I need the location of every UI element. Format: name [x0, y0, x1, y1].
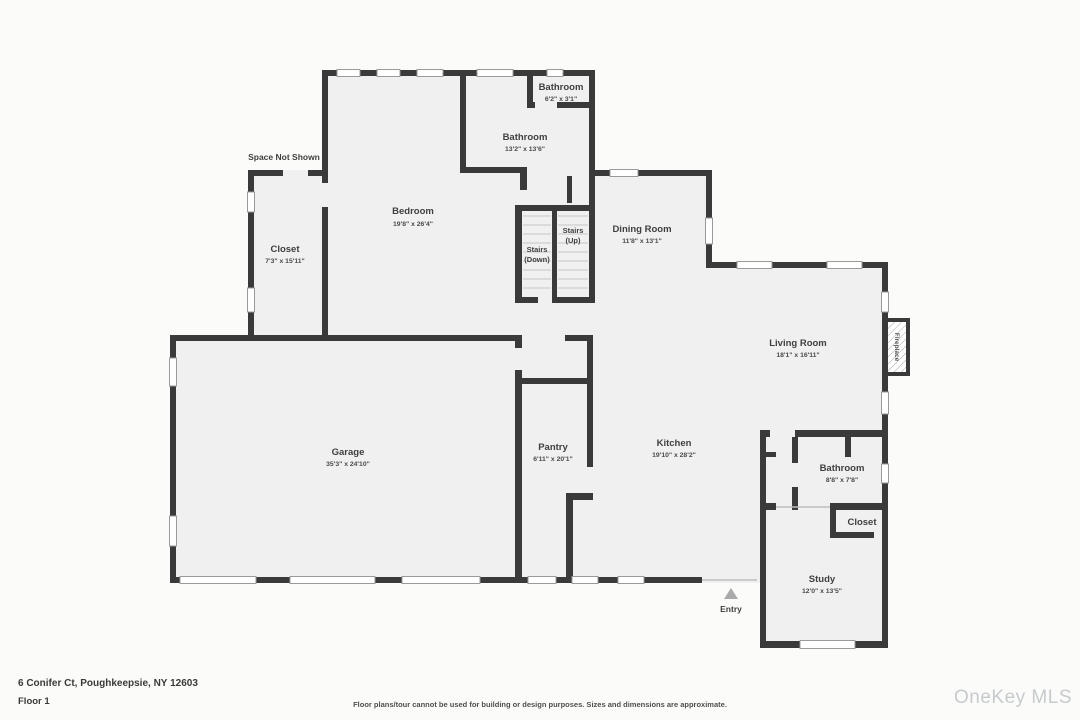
entry-arrow-icon	[724, 588, 738, 599]
room-dims-living: 18'1" x 16'11"	[776, 352, 819, 359]
room-label-bedroom: Bedroom	[392, 206, 434, 217]
room-label-kitchen: Kitchen	[657, 438, 692, 449]
room-dims-study: 12'0" x 13'5"	[802, 588, 842, 595]
stairs-down-label-2: (Down)	[524, 255, 550, 264]
stairs-up-label-2: (Up)	[566, 236, 581, 245]
stairs-up-label-1: Stairs	[563, 226, 584, 235]
room-label-closet-left: Closet	[270, 244, 300, 255]
room-dims-kitchen: 19'10" x 28'2"	[652, 452, 696, 459]
room-label-bathroom-back: Bathroom	[820, 463, 865, 474]
room-dims-closet-left: 7'3" x 15'11"	[265, 258, 305, 265]
room-dims-bedroom: 19'8" x 26'4"	[393, 221, 433, 228]
entry-label: Entry	[720, 604, 742, 614]
watermark-text: OneKey MLS	[954, 687, 1072, 709]
floor-plan-canvas: Fireplace Entry Bathroom 6'2" x 3'1" Bat…	[0, 0, 1080, 720]
room-label-dining: Dining Room	[612, 224, 671, 235]
disclaimer-text: Floor plans/tour cannot be used for buil…	[0, 700, 1080, 709]
room-label-garage: Garage	[332, 447, 365, 458]
room-label-bathroom-main: Bathroom	[503, 132, 548, 143]
stairs-down-label-1: Stairs	[527, 245, 548, 254]
entry-marker: Entry	[720, 588, 742, 614]
room-dims-garage: 35'3" x 24'10"	[326, 461, 370, 468]
address-text: 6 Conifer Ct, Poughkeepsie, NY 12603	[18, 678, 198, 689]
fireplace-label: Fireplace	[893, 333, 900, 362]
room-label-living: Living Room	[769, 338, 827, 349]
room-label-study: Study	[809, 574, 836, 585]
space-not-shown-label: Space Not Shown	[248, 152, 320, 162]
room-label-bathroom-small: Bathroom	[539, 82, 584, 93]
room-label-pantry: Pantry	[538, 442, 568, 453]
room-dims-bathroom-small: 6'2" x 3'1"	[545, 96, 577, 103]
room-dims-dining: 11'8" x 13'1"	[622, 238, 662, 245]
room-dims-pantry: 6'11" x 20'1"	[533, 456, 573, 463]
room-dims-bathroom-main: 13'2" x 13'6"	[505, 146, 545, 153]
fireplace: Fireplace	[886, 320, 908, 374]
room-dims-bathroom-back: 8'8" x 7'8"	[826, 477, 858, 484]
room-label-closet-study: Closet	[847, 517, 877, 528]
